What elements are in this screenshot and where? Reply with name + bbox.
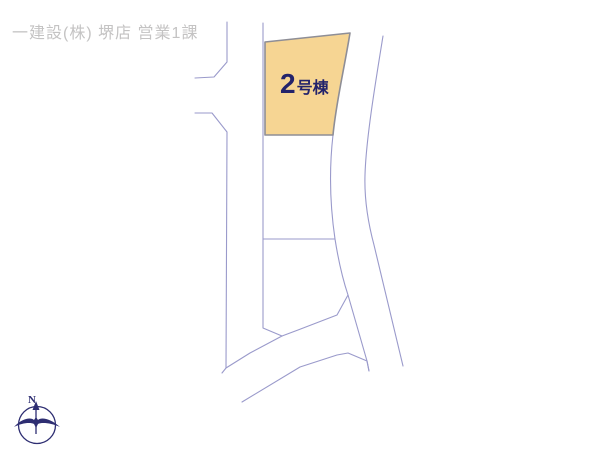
plot-number-suffix: 号棟 bbox=[297, 80, 329, 97]
highlighted-plot-label: 2号棟 bbox=[280, 68, 329, 100]
header-title: 一建設(株) 堺店 営業1課 bbox=[12, 19, 198, 43]
plot-number: 2 bbox=[280, 68, 297, 99]
road-edge-left-upper bbox=[195, 22, 227, 78]
road-edge-left-lower bbox=[195, 113, 227, 368]
road-edge-curve-left bbox=[331, 135, 369, 371]
diagonal-road-upper-edge bbox=[222, 295, 348, 373]
site-plan-page: { "header": { "title": "一建設(株) 堺店 営業1課" … bbox=[0, 0, 600, 450]
compass: N bbox=[14, 394, 60, 444]
road-edge-curve-right bbox=[365, 36, 403, 366]
compass-wings bbox=[14, 417, 60, 428]
diagonal-road-lower-edge bbox=[242, 353, 369, 402]
